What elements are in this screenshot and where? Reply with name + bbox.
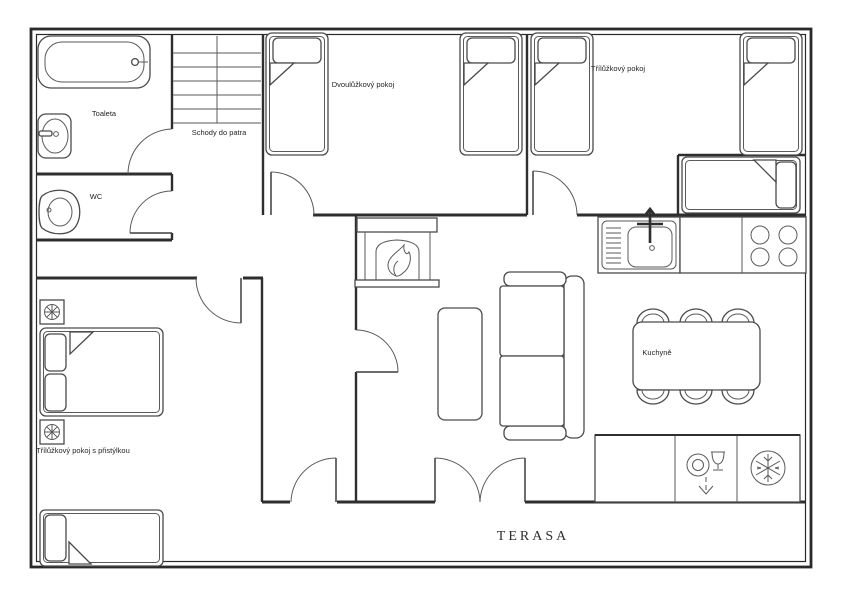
bathroom-sink	[38, 114, 71, 158]
stairs	[173, 36, 261, 123]
toilet	[39, 190, 80, 234]
bed-alcove	[682, 157, 800, 213]
bed-triple-room-left	[531, 33, 593, 155]
bed-double	[40, 328, 163, 416]
label-wc: WC	[90, 192, 103, 201]
dining-chairs-bottom	[637, 390, 754, 404]
nightstand-top	[40, 300, 64, 324]
label-triple-bedroom-extra: Třílůžkový pokoj s přistýlkou	[36, 446, 130, 455]
sofa	[500, 272, 584, 440]
label-double-bedroom: Dvoulůžkový pokoj	[332, 80, 395, 89]
label-kitchen: Kuchyně	[642, 348, 671, 357]
bed-double-room-left	[266, 33, 328, 155]
label-toaleta: Toaleta	[92, 109, 117, 118]
label-stairs: Schody do patra	[192, 128, 247, 137]
door-living-room	[356, 330, 398, 372]
nightstand-bottom	[40, 420, 64, 444]
door-bottom-left-room	[196, 278, 241, 323]
floor-plan: Toaleta WC Schody do patra Dvoulůžkový p…	[0, 0, 841, 595]
label-terrace: TERASA	[497, 529, 569, 544]
door-toaleta	[128, 129, 172, 174]
coffee-table	[438, 308, 482, 420]
label-triple-bedroom: Třílůžkový pokoj	[591, 64, 646, 73]
dining-chairs-top	[637, 309, 754, 323]
fireplace	[355, 218, 439, 287]
door-wc	[130, 191, 172, 233]
bathtub	[38, 36, 150, 88]
kitchen-sink-unit	[598, 209, 680, 273]
bed-double-room-right	[460, 33, 522, 155]
door-terrace-single	[291, 458, 336, 502]
door-terrace-double	[435, 458, 525, 502]
bed-triple-room-right	[740, 33, 802, 155]
door-triple-bedroom	[533, 171, 577, 215]
flame-icon	[388, 245, 410, 276]
door-double-bedroom	[271, 172, 314, 215]
bed-single-bottom	[40, 510, 163, 566]
kitchen-counter	[680, 217, 806, 273]
